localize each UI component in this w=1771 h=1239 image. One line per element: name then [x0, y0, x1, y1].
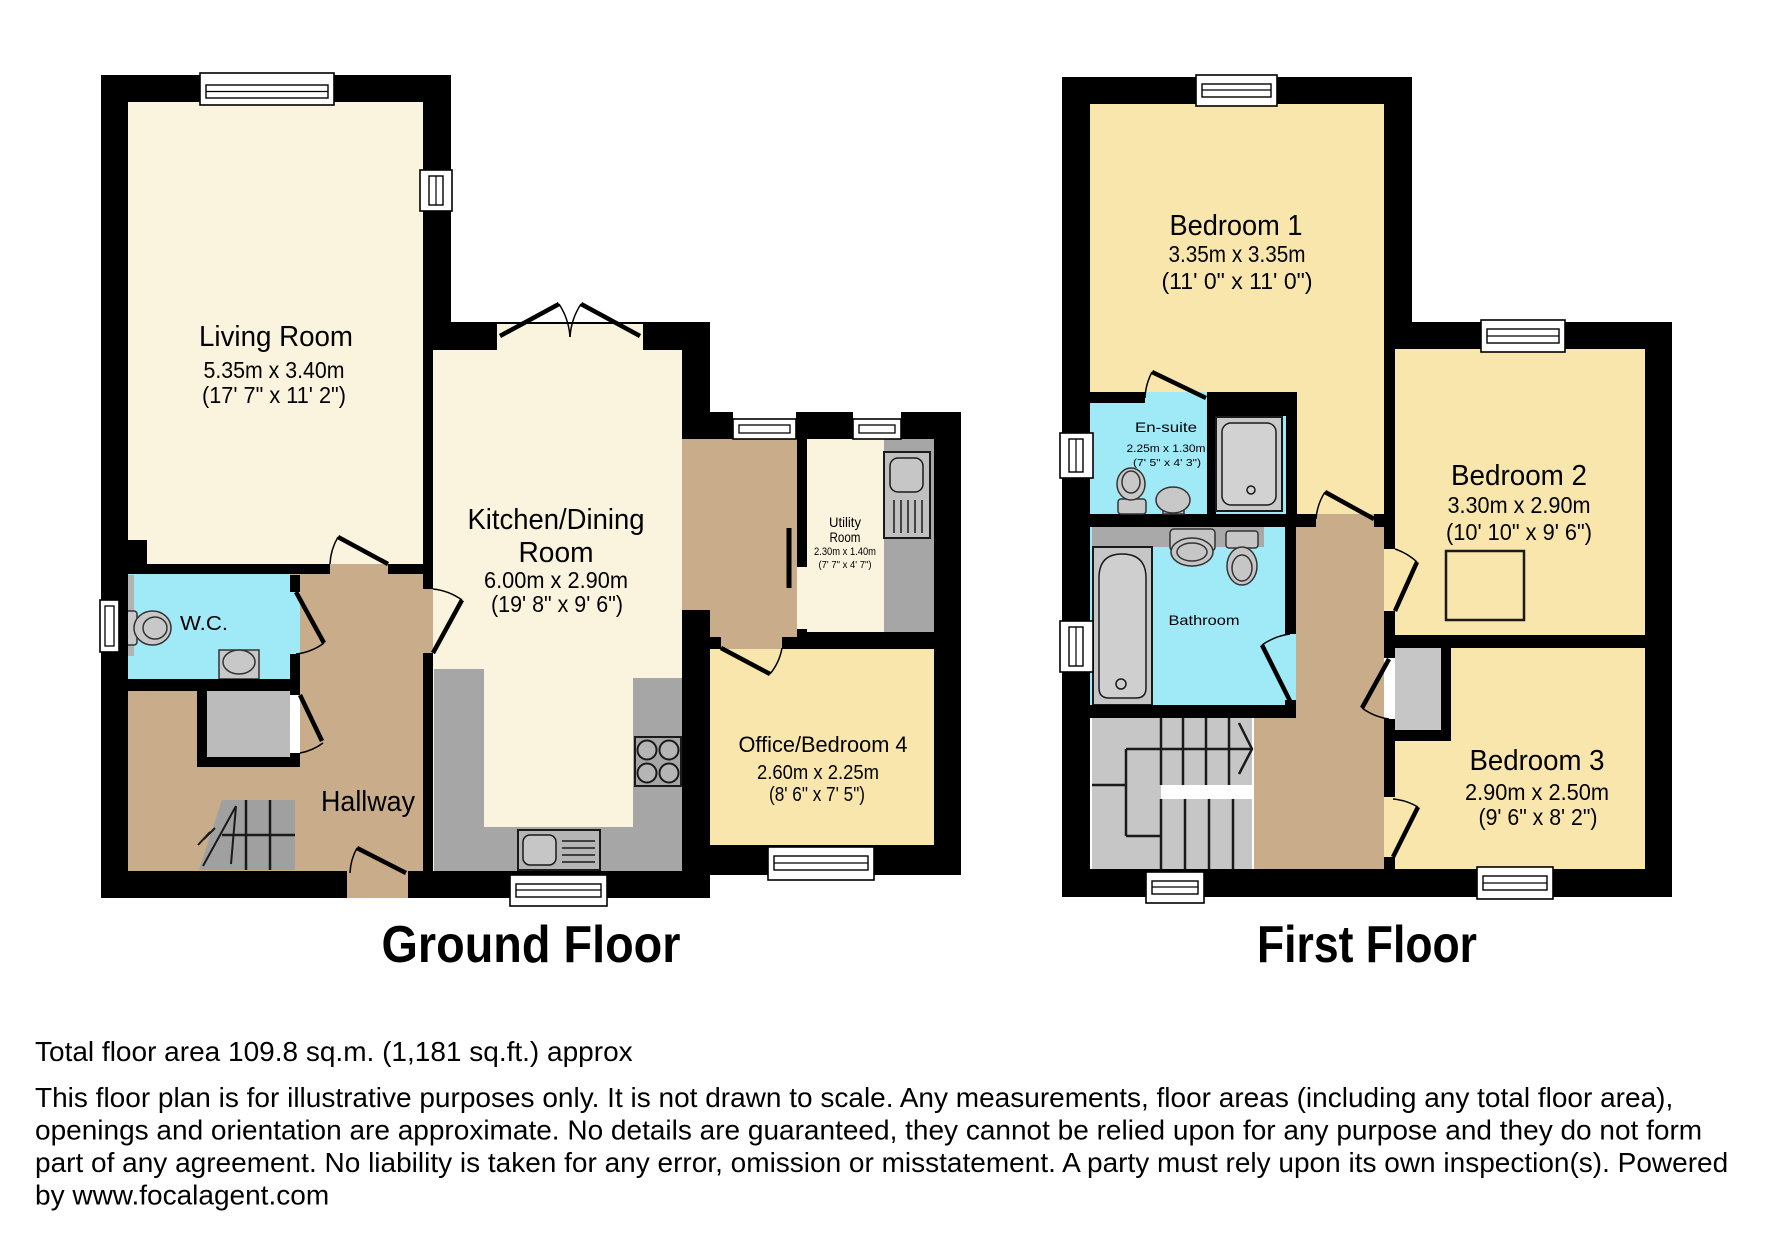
- svg-text:6.00m x 2.90m: 6.00m x 2.90m: [484, 567, 628, 593]
- svg-text:Ground Floor: Ground Floor: [382, 916, 681, 974]
- svg-text:Bedroom 3: Bedroom 3: [1470, 745, 1605, 777]
- svg-text:3.35m x 3.35m: 3.35m x 3.35m: [1169, 241, 1306, 267]
- svg-text:(17' 7" x 11' 2"): (17' 7" x 11' 2"): [202, 382, 346, 408]
- svg-text:Bathroom: Bathroom: [1169, 612, 1240, 628]
- svg-text:Kitchen/Dining: Kitchen/Dining: [468, 504, 645, 536]
- svg-text:2.60m x 2.25m: 2.60m x 2.25m: [757, 762, 879, 784]
- svg-text:Living Room: Living Room: [199, 321, 353, 353]
- svg-text:This floor plan is for illustr: This floor plan is for illustrative purp…: [35, 1082, 1673, 1113]
- svg-text:W.C.: W.C.: [180, 613, 228, 635]
- svg-text:Room: Room: [519, 537, 594, 569]
- svg-text:Total floor area 109.8 sq.m. (: Total floor area 109.8 sq.m. (1,181 sq.f…: [35, 1036, 633, 1067]
- svg-text:(7' 7" x 4' 7"): (7' 7" x 4' 7"): [819, 560, 872, 571]
- svg-text:(9' 6" x 8' 2"): (9' 6" x 8' 2"): [1479, 804, 1598, 830]
- svg-text:(10' 10" x 9' 6"): (10' 10" x 9' 6"): [1446, 519, 1592, 545]
- svg-text:(19' 8" x 9' 6"): (19' 8" x 9' 6"): [491, 591, 623, 617]
- svg-text:Office/Bedroom 4: Office/Bedroom 4: [739, 732, 908, 757]
- svg-text:2.30m x 1.40m: 2.30m x 1.40m: [814, 546, 876, 558]
- svg-text:(11' 0" x 11' 0"): (11' 0" x 11' 0"): [1162, 268, 1313, 294]
- svg-text:Hallway: Hallway: [321, 786, 415, 818]
- svg-text:2.25m x 1.30m: 2.25m x 1.30m: [1127, 443, 1206, 455]
- svg-text:3.30m x 2.90m: 3.30m x 2.90m: [1448, 492, 1591, 518]
- svg-text:En-suite: En-suite: [1135, 419, 1197, 435]
- svg-text:2.90m x 2.50m: 2.90m x 2.50m: [1465, 779, 1609, 805]
- svg-text:by www.focalagent.com: by www.focalagent.com: [35, 1180, 329, 1211]
- svg-text:Bedroom 1: Bedroom 1: [1170, 210, 1303, 242]
- svg-text:(7' 5" x 4' 3"): (7' 5" x 4' 3"): [1133, 458, 1201, 469]
- svg-text:Bedroom 2: Bedroom 2: [1451, 460, 1587, 492]
- svg-text:First Floor: First Floor: [1257, 916, 1477, 974]
- svg-text:openings and orientation are a: openings and orientation are approximate…: [35, 1115, 1702, 1146]
- svg-text:(8' 6" x 7' 5"): (8' 6" x 7' 5"): [769, 784, 865, 806]
- svg-text:part of any agreement. No liab: part of any agreement. No liability is t…: [35, 1147, 1728, 1178]
- svg-text:Room: Room: [830, 529, 861, 545]
- svg-text:5.35m x 3.40m: 5.35m x 3.40m: [204, 357, 345, 383]
- svg-text:Utility: Utility: [829, 514, 861, 530]
